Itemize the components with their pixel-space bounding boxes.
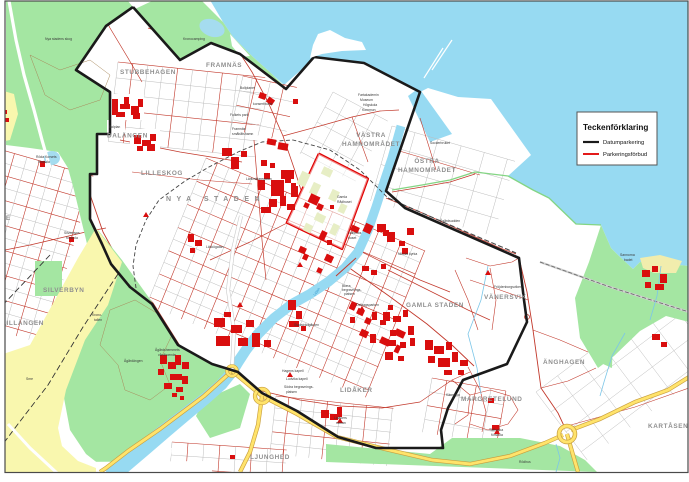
svg-text:vårdboende: vårdboende	[158, 353, 176, 357]
svg-text:Röda Korsets: Röda Korsets	[36, 155, 57, 159]
svg-text:Silverbyns: Silverbyns	[64, 231, 80, 235]
svg-text:Bolplan: Bolplan	[109, 125, 120, 129]
svg-text:LILLESKOG: LILLESKOG	[141, 170, 183, 177]
svg-text:SILVERBYN: SILVERBYN	[43, 287, 85, 294]
svg-text:Folkets park: Folkets park	[230, 113, 249, 117]
svg-text:Sannorna: Sannorna	[620, 253, 635, 257]
svg-text:Fröjdenborgsviken: Fröjdenborgsviken	[494, 285, 522, 289]
svg-text:STUBBEHAGEN: STUBBEHAGEN	[120, 69, 176, 76]
svg-text:Fartakademin: Fartakademin	[358, 93, 379, 97]
svg-text:Parkeringsförbud: Parkeringsförbud	[603, 152, 647, 158]
svg-text:Rödhus: Rödhus	[519, 460, 531, 464]
svg-text:Södra begravnings-: Södra begravnings-	[284, 385, 314, 389]
svg-text:VÄNERSVIK: VÄNERSVIK	[484, 293, 527, 301]
svg-text:NYA STADEN: NYA STADEN	[166, 196, 265, 203]
svg-text:VÄSTRA: VÄSTRA	[356, 131, 386, 139]
svg-text:KARTÅSEN: KARTÅSEN	[648, 421, 688, 430]
svg-text:Tallbacka: Tallbacka	[489, 428, 503, 432]
svg-text:förskola: förskola	[491, 433, 503, 437]
svg-text:Kronocamping: Kronocamping	[183, 37, 205, 41]
svg-text:LIDÅKER: LIDÅKER	[340, 385, 373, 394]
svg-text:Ludvika kapell: Ludvika kapell	[286, 377, 308, 381]
svg-text:Stadsträdgården: Stadsträdgården	[294, 323, 319, 327]
svg-text:Läckögatan: Läckögatan	[206, 245, 224, 249]
svg-text:Lidbecks: Lidbecks	[348, 231, 362, 235]
svg-text:skolan: skolan	[336, 421, 346, 425]
svg-text:Datumparkering: Datumparkering	[603, 140, 644, 146]
svg-text:Lidåkers: Lidåkers	[334, 416, 347, 420]
svg-text:Ågårdängen: Ågårdängen	[124, 358, 143, 363]
svg-text:LILLÄNGEN: LILLÄNGEN	[2, 319, 44, 327]
svg-text:HAMNOMRÅDET: HAMNOMRÅDET	[342, 139, 400, 148]
svg-text:ÄNGHAGEN: ÄNGHAGEN	[543, 358, 585, 366]
svg-text:Nya stadens skog: Nya stadens skog	[45, 37, 72, 41]
svg-text:Nikolai kyrka: Nikolai kyrka	[398, 252, 417, 256]
svg-text:Sme: Sme	[26, 377, 33, 381]
svg-text:GAMLA STADEN: GAMLA STADEN	[406, 302, 464, 309]
svg-text:tallen: tallen	[94, 318, 102, 322]
svg-text:Lärkmätaregatan: Lärkmätaregatan	[246, 177, 272, 181]
svg-text:Bollplaner: Bollplaner	[240, 86, 256, 90]
svg-text:förskola: förskola	[66, 236, 78, 240]
svg-text:Ågårdsudden: Ågårdsudden	[440, 218, 460, 223]
svg-text:huset: huset	[348, 236, 356, 240]
svg-text:FRAMNÄS: FRAMNÄS	[206, 61, 242, 69]
svg-text:LJUNGHED: LJUNGHED	[250, 454, 290, 461]
svg-text:platsen: platsen	[286, 390, 297, 394]
svg-text:småbåtshamn: småbåtshamn	[232, 132, 253, 136]
svg-text:platsen: platsen	[344, 292, 355, 296]
svg-text:Rådhuset: Rådhuset	[337, 200, 352, 204]
svg-text:Museum: Museum	[360, 98, 373, 102]
svg-text:Ågårdshemmets: Ågårdshemmets	[155, 347, 180, 352]
svg-text:Krono-: Krono-	[92, 313, 102, 317]
svg-text:förskola: förskola	[38, 160, 50, 164]
svg-text:Gamla: Gamla	[337, 195, 347, 199]
svg-text:Högskola: Högskola	[363, 103, 377, 107]
svg-text:Sockerbruket: Sockerbruket	[430, 141, 450, 145]
svg-text:Hagens kapell: Hagens kapell	[282, 369, 304, 373]
svg-text:Kärrshua: Kärrshua	[446, 393, 460, 397]
svg-text:MARGRETELUND: MARGRETELUND	[461, 396, 523, 403]
svg-text:Kommun: Kommun	[362, 108, 376, 112]
svg-text:ÖSTRA: ÖSTRA	[414, 156, 439, 165]
svg-text:Framnäs: Framnäs	[232, 127, 246, 131]
svg-text:Teckenförklaring: Teckenförklaring	[583, 123, 648, 132]
svg-text:Östhagsparken: Östhagsparken	[356, 303, 379, 307]
svg-text:DALÄNGEN: DALÄNGEN	[107, 132, 148, 140]
svg-text:konserthuset: konserthuset	[253, 102, 272, 106]
svg-text:HAMNOMRÅDET: HAMNOMRÅDET	[398, 165, 456, 174]
svg-text:badet: badet	[624, 258, 633, 262]
